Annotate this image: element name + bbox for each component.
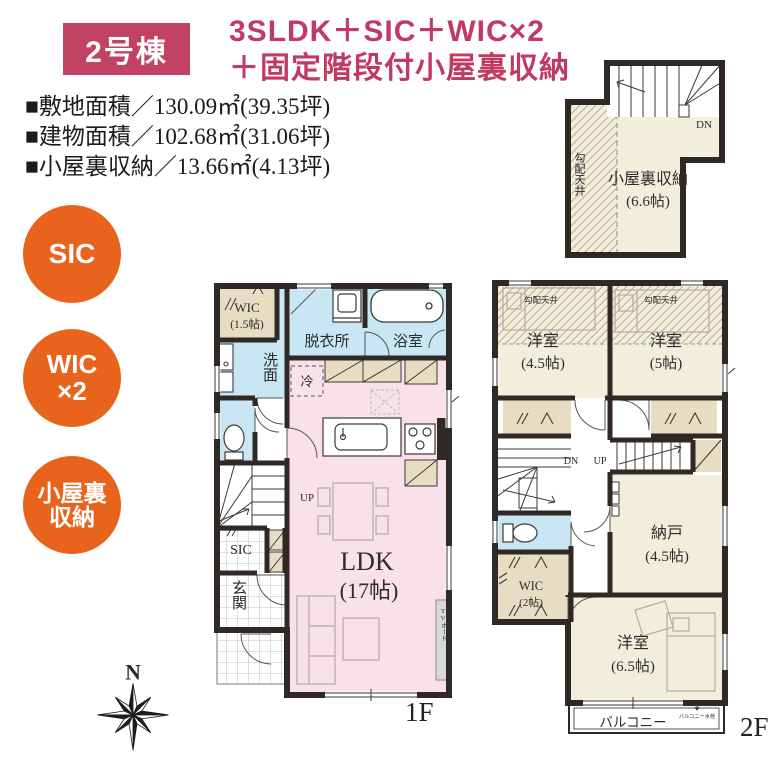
stairs-dn-label-2f: DN — [564, 456, 578, 467]
wic-2f-size: (2帖) — [519, 596, 543, 609]
feature-badge-attic-label1: 小屋裏 — [38, 481, 107, 505]
stairs-up-label-2f: UP — [594, 456, 607, 467]
compass-star — [98, 683, 169, 750]
spec-attic-area: ■小屋裏収納／13.66㎡(4.13坪) — [25, 152, 330, 182]
feature-badge-attic: 小屋裏 収納 — [23, 456, 121, 554]
wic-2f-label: WIC — [519, 579, 543, 593]
floor-label-1f: 1F — [405, 697, 434, 728]
bedroom1-size: (4.5帖) — [521, 355, 565, 372]
attic-room-label: 小屋裏収納 — [608, 169, 688, 188]
balcony-tap-label: バルコニー水栓 — [679, 712, 716, 720]
ldk-size: (17帖) — [340, 578, 399, 603]
dressing-label: 脱衣所 — [304, 333, 349, 350]
spec-site-area: ■敷地面積／130.09㎡(39.35坪) — [25, 92, 330, 122]
stairs-1f — [217, 463, 287, 528]
toilet-1f — [224, 425, 244, 460]
bedroom1-label: 洋室 — [527, 332, 559, 350]
washing-machine — [333, 290, 361, 322]
wic-1f-size: (1.5帖) — [230, 317, 264, 331]
kitchen-counter — [323, 418, 435, 456]
floor-plan-attic: DN 勾配天井 小屋裏収納 (6.6帖) — [553, 52, 729, 264]
sic-label: SIC — [230, 543, 252, 558]
spec-building-area: ■建物面積／102.68㎡(31.06坪) — [25, 122, 330, 152]
storage-shelves — [612, 482, 619, 516]
bedroom3-label: 洋室 — [617, 634, 649, 652]
feature-badge-wic: WIC ×2 — [23, 329, 121, 427]
stairs-dn-2f — [495, 440, 571, 513]
entrance-label: 玄関 — [230, 580, 247, 611]
room-ldk — [287, 358, 449, 695]
floor-plan-2f: バルコニー バルコニー水栓 — [483, 278, 739, 750]
bedroom2-label: 洋室 — [650, 332, 682, 350]
fridge-label: 冷 — [300, 374, 313, 389]
feature-badge-wic-label: WIC — [47, 351, 98, 378]
building-badge: 2号棟 — [63, 23, 190, 75]
attic-room-size: (6.6帖) — [626, 193, 670, 210]
wic-1f-label: WIC — [234, 300, 259, 315]
sloped-label-left: 勾配天井 — [524, 295, 558, 305]
entrance-porch — [217, 632, 285, 684]
sloped-label-right: 勾配天井 — [644, 295, 678, 305]
toilet-2f — [503, 524, 537, 542]
bath-label: 浴室 — [393, 333, 423, 350]
plan-title-line2: ＋固定階段付小屋裏収納 — [229, 50, 570, 87]
attic-stairs — [607, 63, 722, 117]
storage-label: 納戸 — [651, 524, 683, 542]
feature-badge-attic-label2: 収納 — [49, 505, 95, 529]
bathtub — [371, 290, 443, 322]
balcony-label: バルコニー — [599, 715, 666, 730]
bedroom3-size: (6.5帖) — [611, 658, 655, 675]
feature-badge-sic: SIC — [23, 205, 121, 303]
stairs-up-label-1f: UP — [300, 492, 314, 504]
closet-bedroom1 — [503, 400, 571, 436]
plan-title-line1: 3SLDK＋SIC＋WIC×2 — [229, 13, 570, 50]
floor-label-2f: 2F — [740, 712, 769, 743]
feature-badge-wic-count: ×2 — [57, 378, 87, 405]
storage-size: (4.5帖) — [645, 548, 689, 565]
feature-badge-sic-label: SIC — [49, 239, 96, 268]
closet-bedroom2 — [651, 400, 717, 436]
attic-sloped-label: 勾配天井 — [573, 152, 586, 197]
kitchen-closets — [325, 360, 437, 384]
area-specs: ■敷地面積／130.09㎡(39.35坪) ■建物面積／102.68㎡(31.0… — [25, 92, 330, 182]
stairs-up-2f — [610, 440, 693, 472]
compass-rose-icon: N — [78, 652, 190, 770]
balcony: バルコニー バルコニー水栓 — [569, 704, 724, 733]
floor-plan-1f: 冷 TVボード — [205, 278, 465, 723]
washroom-label: 洗面 — [261, 352, 278, 382]
bedroom2-size: (5帖) — [650, 355, 683, 372]
wash-cabinet — [219, 344, 233, 392]
ldk-label: LDK — [340, 547, 394, 576]
compass-north-label: N — [125, 661, 141, 685]
plan-title: 3SLDK＋SIC＋WIC×2 ＋固定階段付小屋裏収納 — [229, 13, 570, 87]
attic-stairs-dn-label: DN — [696, 119, 712, 131]
